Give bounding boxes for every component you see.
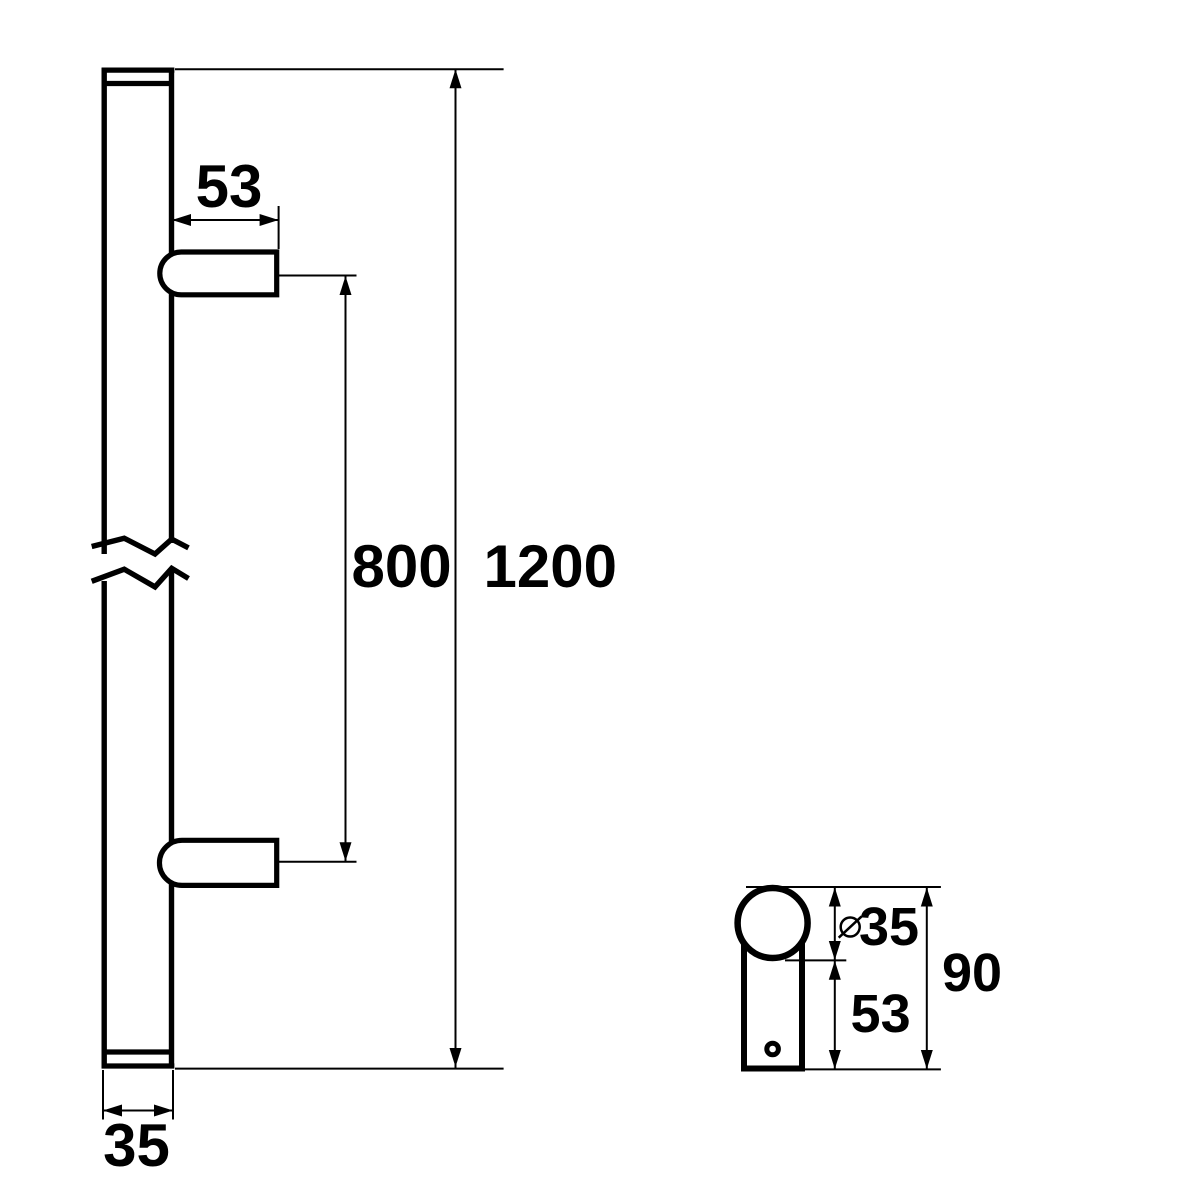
svg-text:90: 90 xyxy=(942,943,1002,1003)
svg-text:35: 35 xyxy=(859,897,919,957)
svg-text:53: 53 xyxy=(196,153,263,220)
svg-text:35: 35 xyxy=(103,1112,170,1179)
svg-text:800: 800 xyxy=(352,533,452,600)
svg-text:53: 53 xyxy=(851,984,911,1044)
svg-text:1200: 1200 xyxy=(484,533,617,600)
